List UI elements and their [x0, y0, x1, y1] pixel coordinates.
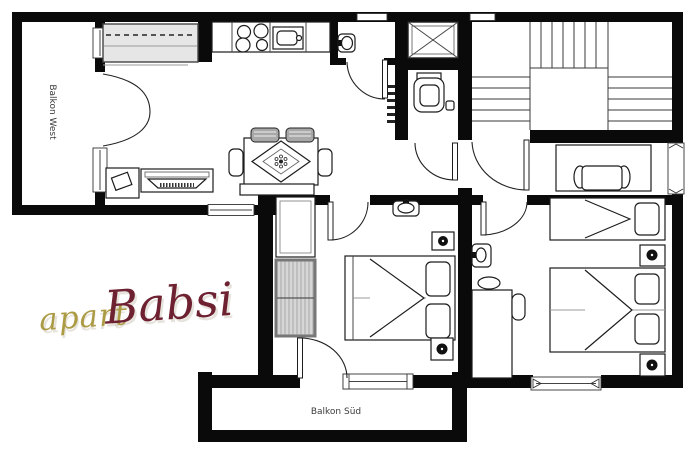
- tv-board: [141, 169, 213, 192]
- wardrobe: [276, 260, 315, 336]
- floorplan-canvas: Balkon West Balkon Süd apart Babsi apart…: [0, 0, 690, 450]
- dining-chair: [318, 149, 332, 176]
- dining-chair: [229, 149, 243, 176]
- dining-chair: [286, 128, 314, 142]
- pillow: [635, 203, 659, 235]
- stairs-icon: [472, 22, 672, 130]
- heater-outlet-icon: [432, 232, 454, 250]
- washbasin-icon: [472, 244, 491, 267]
- balcony-west-label: Balkon West: [47, 84, 57, 140]
- balcony-south-door: [298, 338, 348, 378]
- logo: apart Babsi apart Babsi: [37, 272, 237, 343]
- bedroom2-window: [531, 377, 601, 390]
- bedroom2-door: [481, 202, 527, 235]
- single-bed: [550, 198, 665, 240]
- bedroom1-window: [343, 374, 413, 389]
- washroom-door: [347, 60, 388, 99]
- pillow: [426, 304, 450, 338]
- pillow: [635, 274, 659, 304]
- study: [556, 145, 651, 191]
- bedroom2: [472, 198, 665, 378]
- living-room-window: [208, 205, 254, 216]
- logo-part-babsi: Babsi: [102, 272, 235, 335]
- washbasin-icon: [393, 199, 419, 216]
- wc-door: [415, 143, 458, 180]
- sideboard: [103, 24, 198, 65]
- wardrobe: [472, 277, 525, 378]
- double-bed: [345, 256, 455, 340]
- kitchen: [103, 22, 330, 65]
- side-table: [106, 168, 139, 198]
- top-wall-window-2: [470, 14, 495, 21]
- kitchen-counter: [212, 22, 330, 52]
- toilet-icon: [414, 73, 454, 112]
- balcony-west-french-door: [103, 74, 150, 146]
- washbasin-icon: [338, 34, 355, 52]
- heater-outlet-icon: [640, 245, 665, 266]
- heater-outlet-icon: [640, 354, 665, 376]
- top-wall-window-1: [357, 14, 387, 21]
- kitchen-sink-icon: [273, 27, 303, 49]
- desk-chair: [574, 166, 630, 190]
- pillow: [635, 314, 659, 344]
- double-bed: [550, 268, 665, 352]
- dining-table: [244, 138, 318, 185]
- radiator-icon: [387, 85, 395, 123]
- living-room: [106, 128, 332, 198]
- entrance-door: [472, 140, 529, 190]
- study-window: [668, 143, 684, 194]
- heater-outlet-icon: [431, 338, 453, 360]
- floorplan-drawing: Balkon West Balkon Süd apart Babsi apart…: [0, 0, 690, 450]
- dining-chair: [251, 128, 279, 142]
- cabinet: [276, 197, 315, 257]
- pillow: [426, 262, 450, 296]
- balcony-west-window-bottom: [93, 148, 107, 192]
- shower-icon: [408, 22, 458, 58]
- bedroom1: [276, 197, 455, 360]
- bedroom1-door: [328, 202, 368, 240]
- bench: [240, 184, 314, 195]
- balcony-south-label: Balkon Süd: [311, 407, 361, 417]
